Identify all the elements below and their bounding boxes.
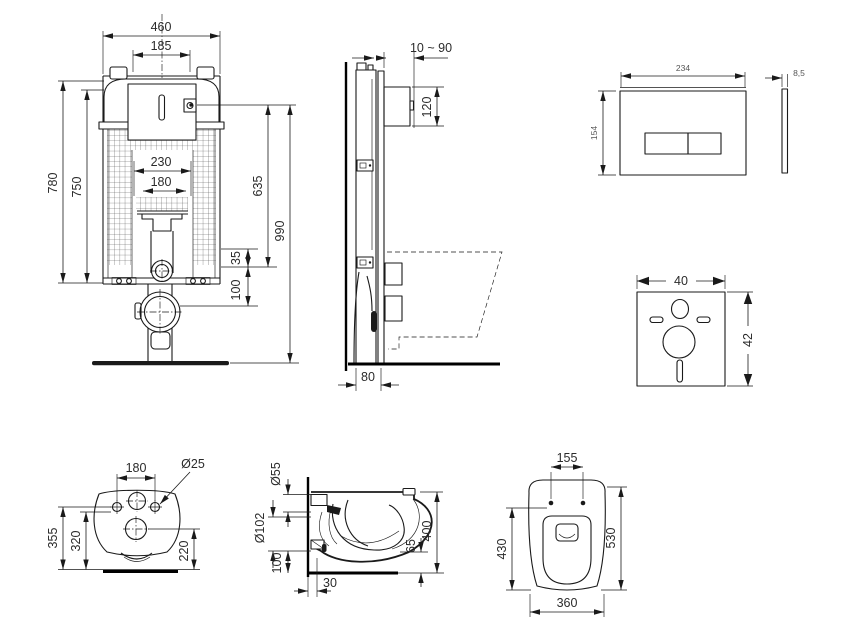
- dim-tank-width: 185: [151, 39, 172, 53]
- dim-inner-depth: 430: [495, 539, 509, 560]
- dim-plate-height: 154: [589, 126, 599, 140]
- dim-total-height: 990: [273, 221, 287, 242]
- dim-plate-width: 234: [676, 63, 690, 73]
- flush-opening: [384, 87, 410, 126]
- flush-outlet-shape: [556, 524, 578, 541]
- dim-offset-b: 100: [229, 280, 243, 301]
- dim-bowl-width: 360: [557, 596, 578, 610]
- dim-pad-width: 40: [674, 274, 688, 288]
- dim-total-depth: 530: [604, 528, 618, 549]
- dim-outlet-diameter: Ø102: [253, 513, 267, 544]
- dim-outlet-height: 220: [177, 541, 191, 562]
- dim-offset-a: 35: [229, 251, 243, 265]
- dim-outlet-offset: 30: [323, 576, 337, 590]
- frame-profile: [354, 63, 414, 364]
- flush-plate-edge-profile: [782, 89, 788, 173]
- dim-frame-depth: 80: [361, 370, 375, 384]
- bowl-top-dimensions: 155 430 530 360: [495, 451, 627, 617]
- mounting-rail: [378, 71, 384, 364]
- flush-plate-thickness-dimension: 8,5: [765, 68, 805, 87]
- dim-wall-finish-range: 10 ~ 90: [410, 41, 452, 55]
- technical-drawing: 460 185 230 180 780 750 635 990 35 100: [0, 0, 853, 630]
- cistern-side-dimensions: 10 ~ 90 120 80: [338, 41, 452, 391]
- dim-plate-thickness: 8,5: [793, 68, 805, 78]
- dim-outlet-axis-height: 100: [270, 553, 284, 574]
- cistern-tank: [99, 67, 224, 140]
- support-foot-plate: [92, 361, 229, 365]
- dim-frame-height: 780: [46, 173, 60, 194]
- dim-rim-height: 400: [420, 521, 434, 542]
- sound-pad-outline: [637, 292, 725, 386]
- dim-front-height: 65: [404, 539, 418, 553]
- dim-hole-spacing: 180: [126, 461, 147, 475]
- dim-height-total: 355: [46, 528, 60, 549]
- dim-inner-width: 230: [151, 155, 172, 169]
- bowl-rear-dimensions: 180 Ø25 355 320 220: [46, 457, 205, 570]
- technical-drawing-page: 460 185 230 180 780 750 635 990 35 100: [0, 0, 853, 630]
- wc-bracket-lower: [385, 296, 402, 321]
- fixing-point-right: [581, 501, 586, 506]
- bowl-side-dimensions: Ø55 Ø102 100 30 65 400: [253, 462, 443, 597]
- dim-opening-height: 120: [420, 97, 434, 118]
- sound-pad-view: 40 42: [637, 274, 755, 386]
- dim-top-hole-spacing: 155: [557, 451, 578, 465]
- bowl-side-view: Ø55 Ø102 100 30 65 400: [253, 462, 444, 597]
- dim-right-height: 635: [251, 176, 265, 197]
- fixing-point-left: [549, 501, 554, 506]
- dim-tank-height: 750: [70, 177, 84, 198]
- dim-pad-height: 42: [741, 333, 755, 347]
- dim-pipe-width: 180: [151, 175, 172, 189]
- wc-bracket-upper: [385, 263, 402, 285]
- dim-inlet-diameter: Ø55: [269, 462, 283, 486]
- dim-height-inner: 320: [69, 531, 83, 552]
- outlet-bend: [92, 284, 229, 365]
- dim-outer-width: 460: [151, 20, 172, 34]
- cistern-front-view: 460 185 230 180 780 750 635 990 35 100: [46, 14, 299, 365]
- dim-hole-diameter: Ø25: [181, 457, 205, 471]
- cistern-side-view: 10 ~ 90 120 80: [338, 41, 502, 391]
- wc-bowl-dashed-outline: [387, 252, 502, 349]
- cistern-mesh-texture: [107, 129, 216, 278]
- bowl-top-view: 155 430 530 360: [495, 451, 627, 617]
- bowl-rear-view: 180 Ø25 355 320 220: [46, 457, 205, 572]
- outlet-connector: [371, 311, 377, 332]
- bowl-inner-rim: [543, 516, 591, 584]
- bowl-top-outline: [529, 480, 606, 590]
- flush-plate-view: 234 154 8,5: [589, 63, 805, 175]
